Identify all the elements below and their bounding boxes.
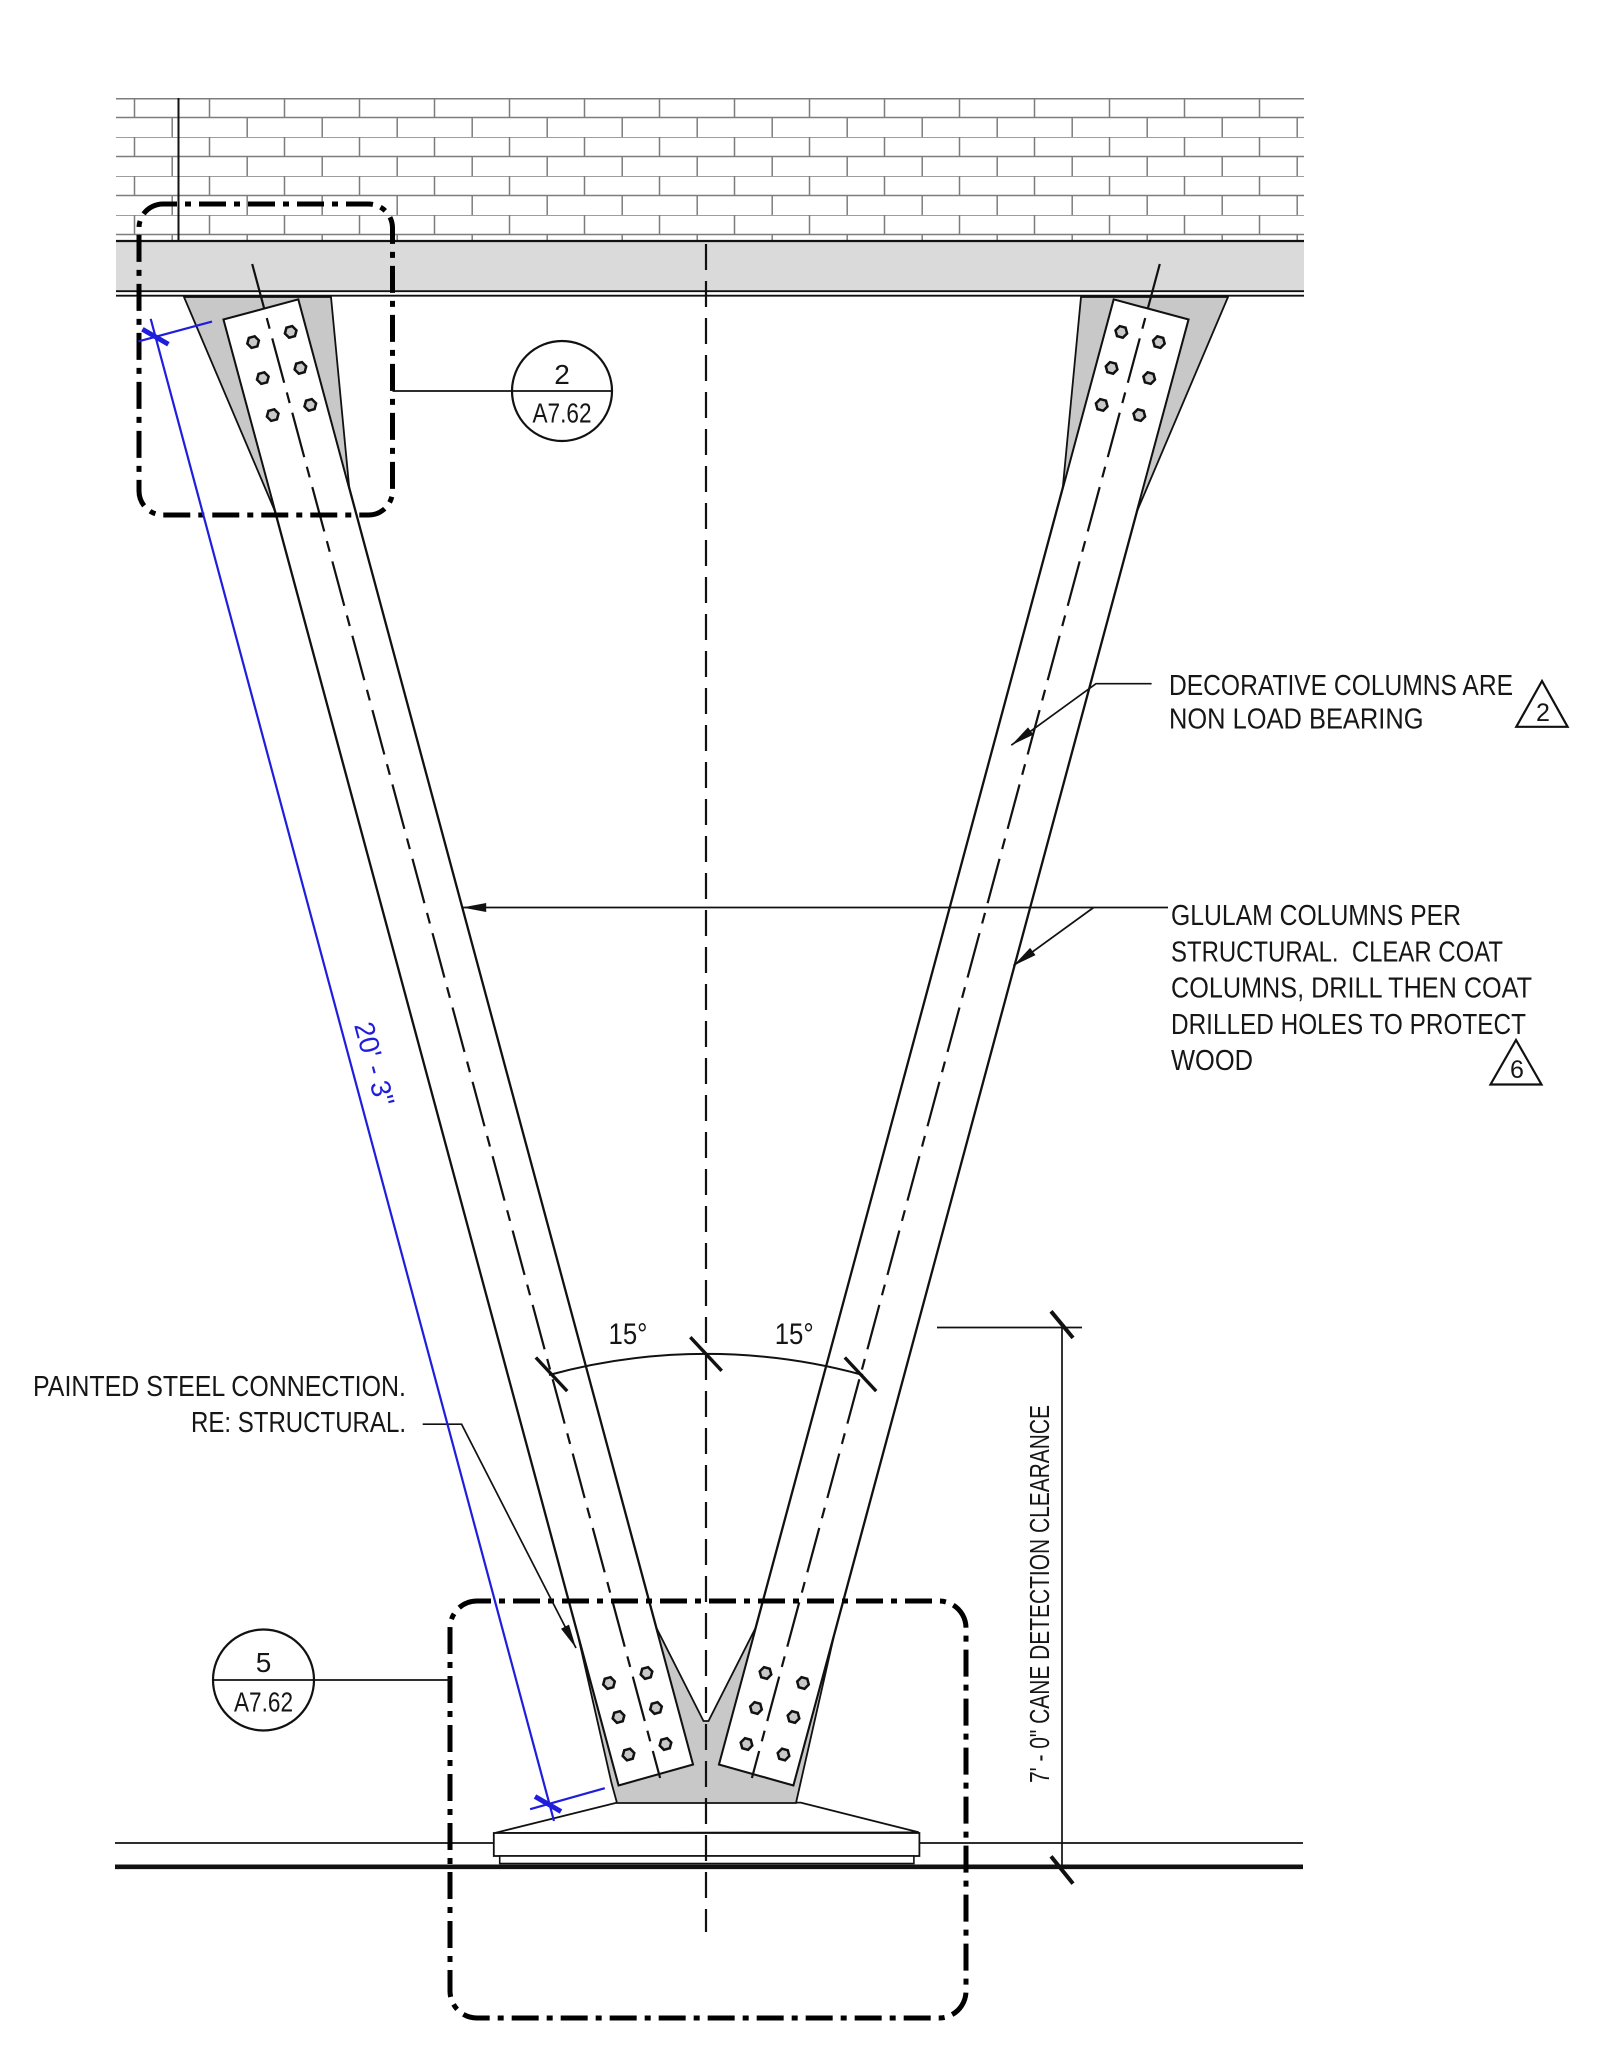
svg-text:A7.62: A7.62 xyxy=(234,1686,293,1717)
svg-text:GLULAM COLUMNS PER: GLULAM COLUMNS PER xyxy=(1171,900,1461,932)
svg-text:6: 6 xyxy=(1510,1056,1524,1084)
svg-text:7' - 0" CANE DETECTION CLEARAN: 7' - 0" CANE DETECTION CLEARANCE xyxy=(1024,1405,1055,1783)
svg-text:15°: 15° xyxy=(775,1318,814,1351)
svg-text:A7.62: A7.62 xyxy=(533,398,592,429)
svg-text:STRUCTURAL. CLEAR COAT: STRUCTURAL. CLEAR COAT xyxy=(1171,936,1503,968)
svg-text:2: 2 xyxy=(1536,699,1550,727)
svg-text:15°: 15° xyxy=(609,1318,648,1351)
svg-text:5: 5 xyxy=(256,1647,272,1678)
svg-text:PAINTED STEEL CONNECTION.: PAINTED STEEL CONNECTION. xyxy=(33,1371,406,1403)
svg-text:DECORATIVE COLUMNS ARE: DECORATIVE COLUMNS ARE xyxy=(1169,670,1513,702)
svg-text:DRILLED HOLES TO PROTECT: DRILLED HOLES TO PROTECT xyxy=(1171,1009,1526,1041)
svg-text:NON LOAD BEARING: NON LOAD BEARING xyxy=(1169,703,1424,735)
svg-text:WOOD: WOOD xyxy=(1171,1045,1253,1077)
svg-text:RE: STRUCTURAL.: RE: STRUCTURAL. xyxy=(191,1407,406,1439)
svg-text:2: 2 xyxy=(554,359,570,390)
svg-text:COLUMNS, DRILL THEN COAT: COLUMNS, DRILL THEN COAT xyxy=(1171,973,1532,1005)
svg-text:20' - 3": 20' - 3" xyxy=(348,1019,400,1110)
